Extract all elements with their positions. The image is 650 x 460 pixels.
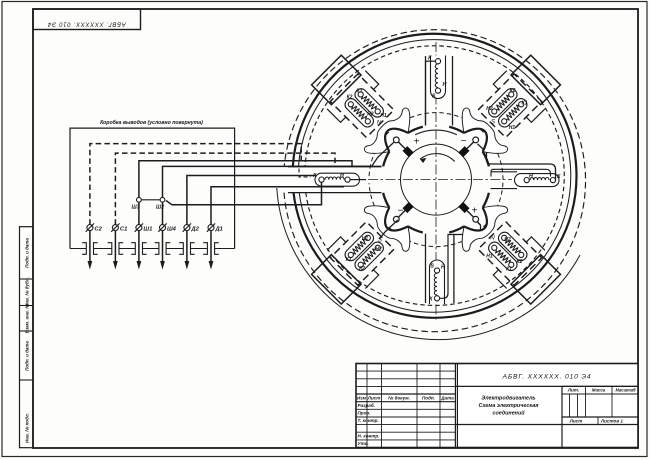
svg-text:Н. контр.: Н. контр. xyxy=(358,434,380,439)
svg-text:К1: К1 xyxy=(506,267,512,273)
svg-text:Изм: Изм xyxy=(357,395,367,400)
svg-text:Инв. № подл.: Инв. № подл. xyxy=(25,413,30,443)
svg-text:Масштаб: Масштаб xyxy=(615,388,636,393)
svg-text:Подп. и дата: Подп. и дата xyxy=(25,341,30,371)
svg-text:Пров.: Пров. xyxy=(358,411,371,416)
svg-text:Разраб.: Разраб. xyxy=(358,402,375,408)
svg-text:К2: К2 xyxy=(510,88,516,94)
svg-text:С1: С1 xyxy=(120,226,127,232)
svg-text:Т. контр.: Т. контр. xyxy=(358,418,379,423)
svg-text:Инв. № дубл.: Инв. № дубл. xyxy=(24,277,30,307)
svg-text:Н1: Н1 xyxy=(486,254,493,260)
svg-text:АБВГ. ХХХХХХ. 010 Э4: АБВГ. ХХХХХХ. 010 Э4 xyxy=(47,20,126,26)
svg-text:Лист: Лист xyxy=(569,418,583,423)
svg-text:АБВГ. ХХХХХХ. 010 Э4: АБВГ. ХХХХХХ. 010 Э4 xyxy=(502,374,592,381)
svg-text:К1: К1 xyxy=(357,89,363,95)
svg-text:Ш2: Ш2 xyxy=(156,205,164,211)
svg-text:Н1: Н1 xyxy=(362,236,369,242)
svg-text:Листов 1: Листов 1 xyxy=(600,418,623,423)
svg-text:К1: К1 xyxy=(346,257,352,263)
svg-text:N: N xyxy=(377,120,382,127)
svg-text:Д1: Д1 xyxy=(215,226,223,232)
svg-text:S: S xyxy=(432,94,436,100)
svg-text:Н: Н xyxy=(441,265,445,271)
svg-text:Ш1: Ш1 xyxy=(143,226,152,232)
svg-text:Масса: Масса xyxy=(592,388,606,393)
svg-text:К2: К2 xyxy=(347,95,353,101)
svg-text:Н1: Н1 xyxy=(380,113,387,119)
svg-text:№ докум.: № докум. xyxy=(388,395,410,400)
svg-text:Ш3: Ш3 xyxy=(132,205,140,211)
svg-text:К2: К2 xyxy=(517,259,523,265)
svg-text:Коробка выводов (условно повер: Коробка выводов (условно повернута) xyxy=(100,119,203,126)
svg-text:−: − xyxy=(398,206,404,217)
svg-text:Н2: Н2 xyxy=(367,112,374,118)
svg-text:Н2: Н2 xyxy=(504,237,511,243)
svg-text:С2: С2 xyxy=(94,226,102,232)
svg-text:Н2: Н2 xyxy=(375,247,382,253)
svg-text:Подп. и дата: Подп. и дата xyxy=(25,238,30,268)
svg-text:Лит.: Лит. xyxy=(567,388,579,393)
svg-text:N: N xyxy=(490,235,495,242)
svg-text:Электродвигатель: Электродвигатель xyxy=(481,396,535,402)
svg-text:Н: Н xyxy=(340,173,344,179)
svg-text:К1: К1 xyxy=(522,101,528,107)
svg-text:Утв.: Утв. xyxy=(358,441,369,446)
svg-text:Н: Н xyxy=(443,82,447,88)
svg-text:Д2: Д2 xyxy=(190,226,199,232)
svg-text:Дата: Дата xyxy=(440,395,454,400)
svg-text:Подп.: Подп. xyxy=(422,395,435,400)
svg-text:Ш4: Ш4 xyxy=(167,226,177,232)
svg-text:Взам. инв. №: Взам. инв. № xyxy=(25,303,30,334)
svg-text:−: − xyxy=(461,136,467,147)
svg-text:S: S xyxy=(430,264,434,270)
svg-text:Лист: Лист xyxy=(367,395,381,400)
svg-text:Н: Н xyxy=(529,174,533,180)
svg-text:К2: К2 xyxy=(359,266,365,272)
svg-text:+: + xyxy=(414,137,420,148)
svg-text:Н1: Н1 xyxy=(509,125,516,131)
svg-text:соединений: соединений xyxy=(492,410,525,417)
svg-text:+: + xyxy=(472,206,478,217)
svg-text:Н2: Н2 xyxy=(486,106,493,112)
svg-text:Схема электрическая: Схема электрическая xyxy=(479,403,540,409)
